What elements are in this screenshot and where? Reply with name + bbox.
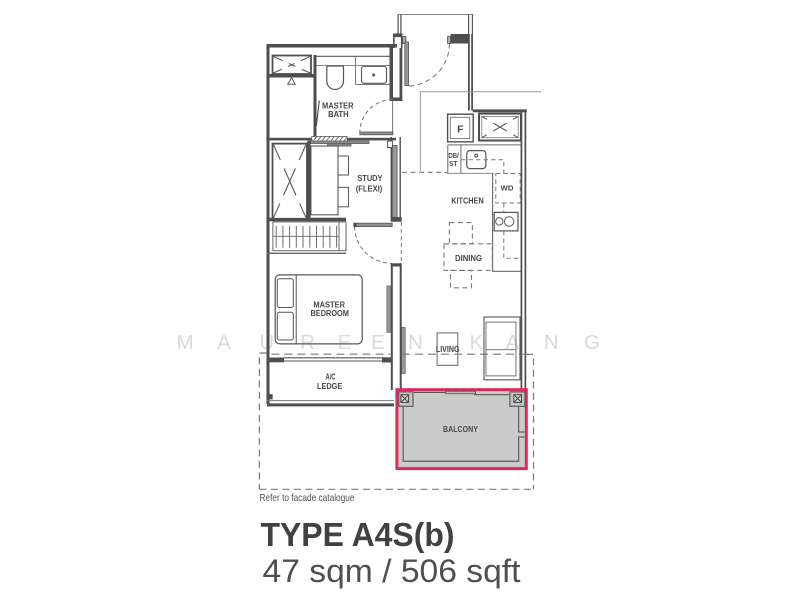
svg-text:Refer to facade catalogue: Refer to facade catalogue — [260, 492, 355, 504]
svg-text:BATH: BATH — [328, 109, 349, 119]
svg-text:BALCONY: BALCONY — [443, 424, 478, 434]
svg-text:DB/: DB/ — [448, 153, 459, 160]
svg-text:M: M — [176, 331, 193, 354]
svg-text:G: G — [584, 331, 600, 354]
svg-text:WD: WD — [501, 184, 515, 193]
svg-text:47 sqm / 506 sqft: 47 sqm / 506 sqft — [263, 553, 521, 589]
svg-text:STUDY: STUDY — [357, 173, 382, 183]
svg-text:LIVING: LIVING — [436, 344, 460, 354]
svg-text:E: E — [338, 331, 352, 354]
svg-text:LEDGE: LEDGE — [317, 381, 343, 391]
svg-text:K: K — [469, 331, 483, 354]
svg-text:DINING: DINING — [455, 253, 482, 263]
svg-text:TYPE A4S(b): TYPE A4S(b) — [261, 517, 455, 554]
svg-text:F: F — [457, 124, 464, 136]
svg-text:A/C: A/C — [326, 372, 336, 382]
svg-text:(FLEXI): (FLEXI) — [356, 184, 383, 194]
svg-text:ST: ST — [449, 161, 458, 168]
svg-text:BEDROOM: BEDROOM — [311, 308, 349, 318]
svg-text:R: R — [300, 331, 315, 354]
svg-text:N: N — [544, 331, 559, 354]
svg-text:N: N — [408, 331, 423, 354]
svg-text:KITCHEN: KITCHEN — [451, 196, 484, 206]
svg-text:E: E — [371, 331, 385, 354]
svg-text:A: A — [506, 331, 520, 354]
svg-text:A: A — [217, 331, 231, 354]
